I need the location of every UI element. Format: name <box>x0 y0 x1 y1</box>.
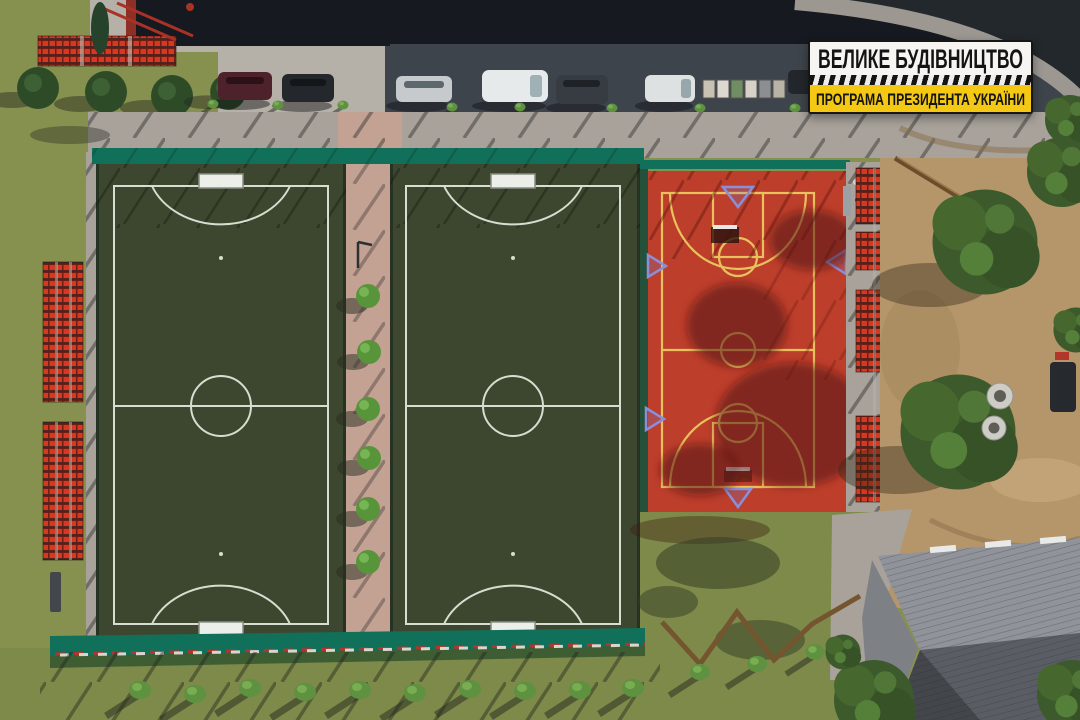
backboard <box>713 225 737 229</box>
goal <box>491 174 535 188</box>
soccer-field-left <box>96 156 346 652</box>
backboard-shadow <box>711 227 739 243</box>
bench <box>843 186 851 216</box>
bench <box>50 572 61 612</box>
badge-subtitle-text: ПРОГРАМА ПРЕЗИДЕНТА УКРАЇНИ <box>816 91 1025 109</box>
goal <box>199 174 243 188</box>
aerial-photo-sports-complex: ВЕЛИКЕ БУДІВНИЦТВО ПРОГРАМА ПРЕЗИДЕНТА У… <box>0 0 1080 720</box>
tree <box>1037 660 1080 720</box>
soccer-field-right <box>390 156 640 652</box>
court-north-fence <box>640 160 850 169</box>
program-badge: ВЕЛИКЕ БУДІВНИЦТВО ПРОГРАМА ПРЕЗИДЕНТА У… <box>808 40 1033 114</box>
hazard-stripe-divider <box>810 75 1031 85</box>
west-side <box>0 152 112 720</box>
basketball-court <box>640 160 871 522</box>
badge-title: ВЕЛИКЕ БУДІВНИЦТВО <box>810 42 1031 75</box>
badge-subtitle: ПРОГРАМА ПРЕЗИДЕНТА УКРАЇНИ <box>810 85 1031 112</box>
badge-title-text: ВЕЛИКЕ БУДІВНИЦТВО <box>818 44 1023 74</box>
parked-van <box>472 70 548 112</box>
tree <box>91 2 109 54</box>
